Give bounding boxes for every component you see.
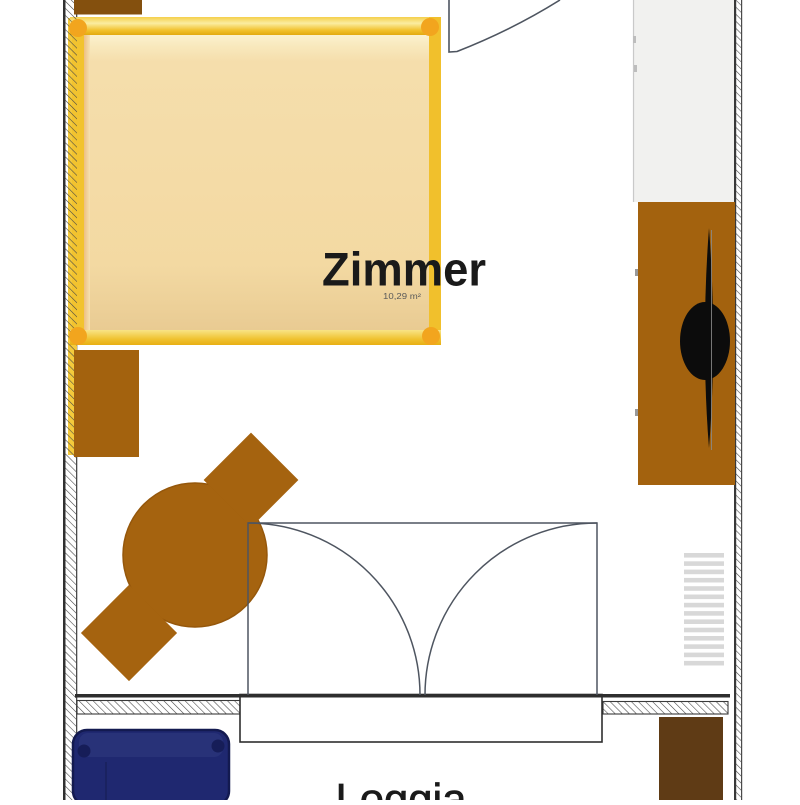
svg-text:Loggia: Loggia: [336, 777, 467, 801]
svg-text:10,29 m²: 10,29 m²: [383, 292, 421, 301]
svg-text:Zimmer: Zimmer: [322, 243, 486, 296]
